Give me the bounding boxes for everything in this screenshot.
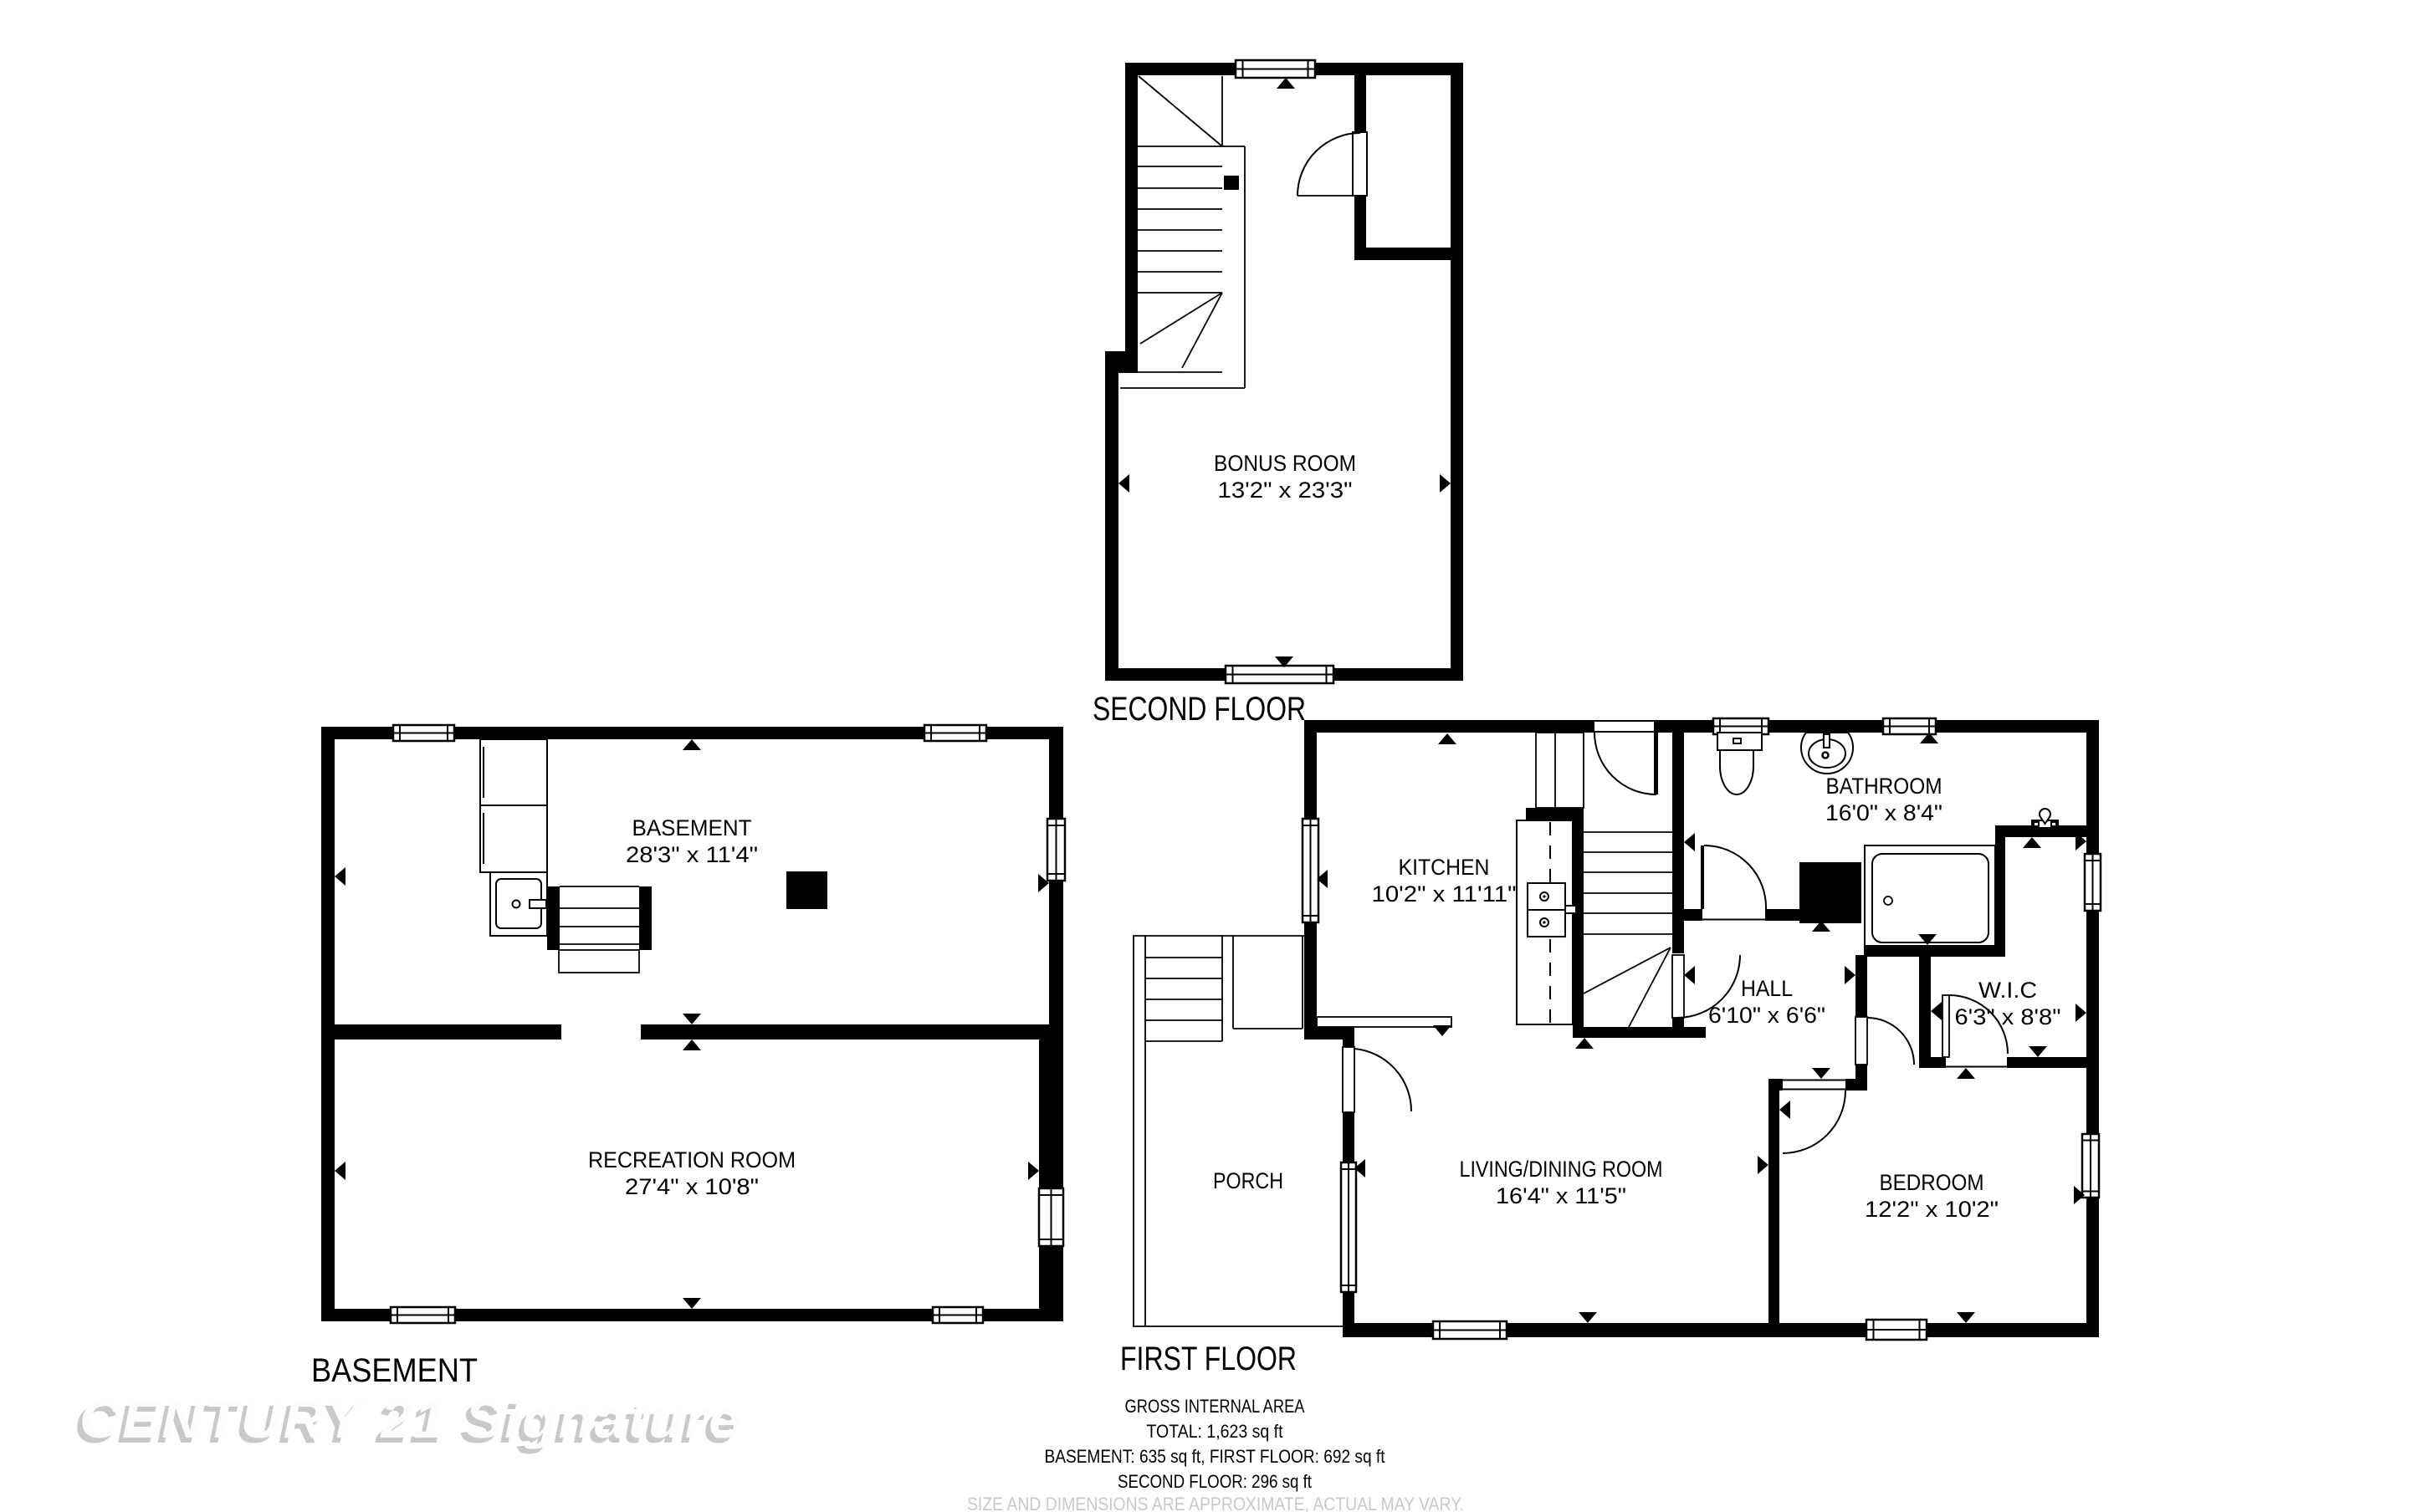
svg-text:27'4" x 10'8": 27'4" x 10'8" bbox=[625, 1174, 759, 1199]
svg-text:SECOND FLOOR: 296 sq ft: SECOND FLOOR: 296 sq ft bbox=[1118, 1471, 1312, 1492]
svg-text:BASEMENT: BASEMENT bbox=[632, 815, 752, 840]
svg-text:BATHROOM: BATHROOM bbox=[1826, 774, 1942, 799]
svg-text:GROSS INTERNAL AREA: GROSS INTERNAL AREA bbox=[1125, 1396, 1305, 1417]
svg-text:KITCHEN: KITCHEN bbox=[1399, 855, 1490, 880]
svg-text:6'10" x 6'6": 6'10" x 6'6" bbox=[1708, 1003, 1825, 1028]
svg-text:FIRST FLOOR: FIRST FLOOR bbox=[1120, 1341, 1297, 1377]
svg-text:SECOND FLOOR: SECOND FLOOR bbox=[1093, 691, 1306, 728]
svg-text:PORCH: PORCH bbox=[1213, 1168, 1283, 1193]
svg-text:13'2" x 23'3": 13'2" x 23'3" bbox=[1218, 478, 1353, 503]
svg-text:LIVING/DINING ROOM: LIVING/DINING ROOM bbox=[1460, 1157, 1663, 1182]
svg-text:16'0" x 8'4": 16'0" x 8'4" bbox=[1825, 800, 1942, 825]
svg-text:6'3" x 8'8": 6'3" x 8'8" bbox=[1955, 1004, 2061, 1029]
svg-text:CENTURY 21 Signature: CENTURY 21 Signature bbox=[79, 1389, 742, 1449]
svg-text:BEDROOM: BEDROOM bbox=[1880, 1170, 1984, 1195]
svg-text:TOTAL: 1,623 sq ft: TOTAL: 1,623 sq ft bbox=[1147, 1421, 1283, 1442]
svg-text:RECREATION ROOM: RECREATION ROOM bbox=[588, 1147, 796, 1172]
svg-text:W.I.C: W.I.C bbox=[1978, 978, 2037, 1003]
svg-text:SIZE AND DIMENSIONS ARE APPROX: SIZE AND DIMENSIONS ARE APPROXIMATE, ACT… bbox=[967, 1494, 1464, 1512]
svg-text:16'4" x 11'5": 16'4" x 11'5" bbox=[1496, 1183, 1626, 1208]
svg-text:HALL: HALL bbox=[1741, 976, 1793, 1001]
svg-text:12'2" x 10'2": 12'2" x 10'2" bbox=[1865, 1197, 1999, 1222]
svg-text:BASEMENT: BASEMENT bbox=[311, 1352, 478, 1389]
svg-text:28'3" x 11'4": 28'3" x 11'4" bbox=[626, 842, 758, 867]
svg-text:10'2" x 11'11": 10'2" x 11'11" bbox=[1372, 881, 1517, 907]
svg-text:BONUS ROOM: BONUS ROOM bbox=[1214, 451, 1356, 476]
svg-text:BASEMENT: 635 sq ft, FIRST FLO: BASEMENT: 635 sq ft, FIRST FLOOR: 692 sq… bbox=[1045, 1446, 1385, 1467]
